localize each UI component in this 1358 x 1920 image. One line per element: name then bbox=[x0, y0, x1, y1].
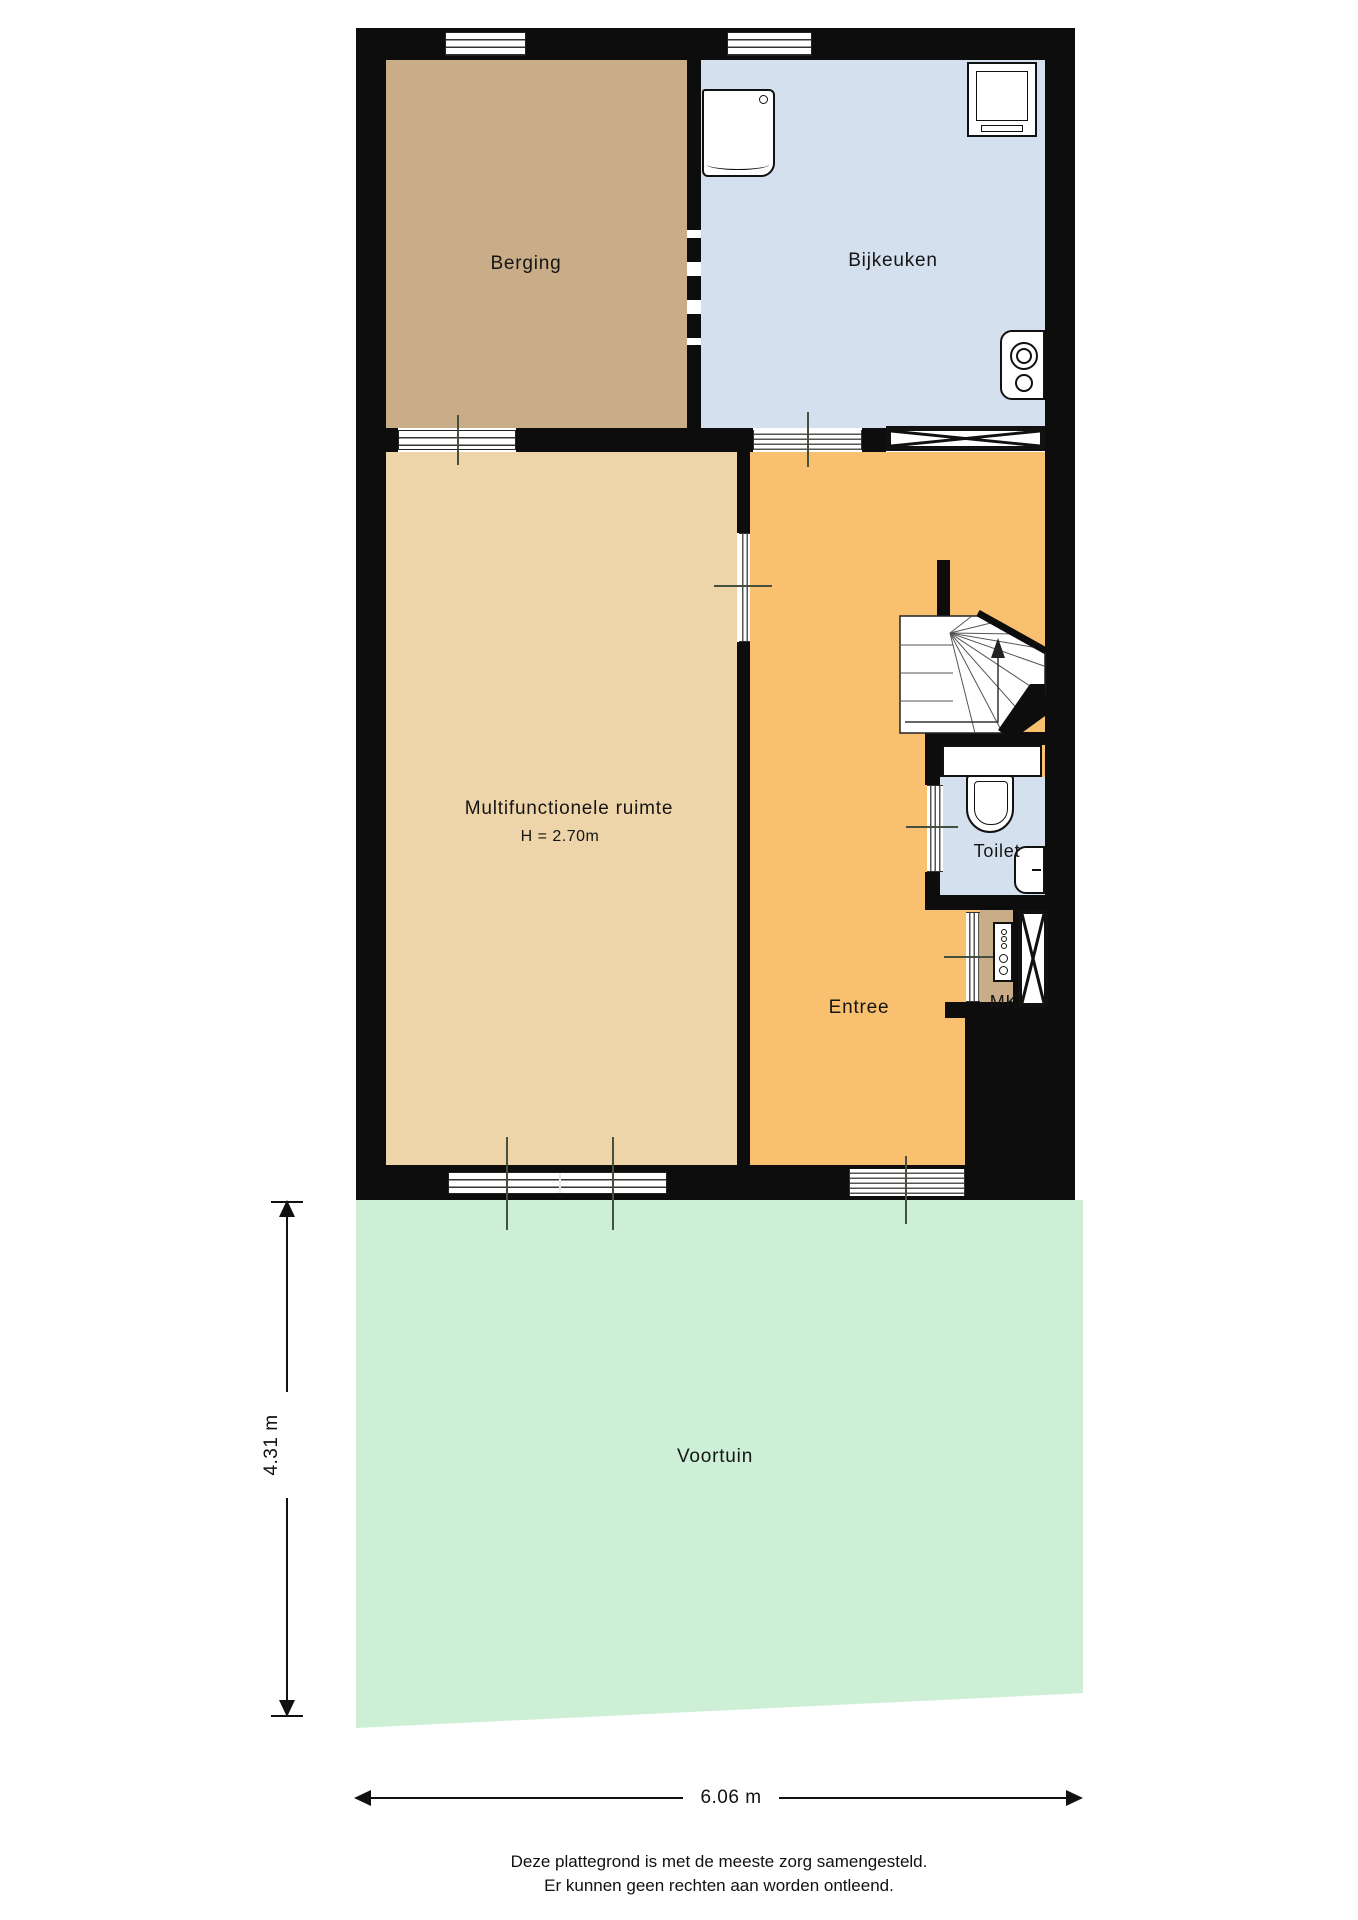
label-voortuin: Voortuin bbox=[615, 1446, 815, 1468]
tick-mk-door bbox=[944, 956, 1000, 958]
wall-divider-lower bbox=[737, 642, 750, 1165]
dim-h-arrow-left-icon bbox=[354, 1790, 371, 1806]
boiler-icon bbox=[1000, 330, 1045, 400]
window-bijkeuken-top bbox=[727, 32, 812, 56]
fuse-panel-icon bbox=[993, 922, 1013, 982]
dim-h-arrow-right-icon bbox=[1066, 1790, 1083, 1806]
label-bijkeuken: Bijkeuken bbox=[793, 250, 993, 272]
wall-mass-bottom-right bbox=[965, 1018, 1075, 1200]
wall-left bbox=[356, 28, 386, 1200]
label-multifunctionele-ruimte: Multifunctionele ruimte bbox=[419, 798, 719, 820]
wall-toilet-bottom bbox=[925, 895, 1075, 910]
wall-mid-right bbox=[862, 428, 886, 452]
opening-dash bbox=[687, 238, 701, 262]
tick-window-bottom-1 bbox=[506, 1137, 508, 1230]
floorplan-canvas: Berging Bijkeuken Multifunctionele ruimt… bbox=[0, 0, 1358, 1920]
dryer-icon bbox=[967, 62, 1037, 137]
closet-x bbox=[886, 426, 1045, 451]
dim-v-cap-top bbox=[271, 1201, 303, 1203]
footer-disclaimer-line2: Er kunnen geen rechten aan worden ontlee… bbox=[0, 1876, 1358, 1896]
label-entree: Entree bbox=[759, 997, 959, 1019]
door-multi-entree bbox=[739, 533, 750, 642]
window-mullion bbox=[559, 1173, 561, 1193]
room-berging bbox=[386, 60, 687, 428]
tick-bijkeuken-door bbox=[807, 412, 809, 467]
tick-window-bottom-2 bbox=[612, 1137, 614, 1230]
dim-plot-width: 6.06 m bbox=[683, 1787, 779, 1809]
dim-v-cap-bottom bbox=[271, 1715, 303, 1717]
dim-v-line-bottom bbox=[286, 1498, 288, 1710]
tick-toilet-door bbox=[906, 826, 958, 828]
closet-x-icon bbox=[891, 431, 1040, 446]
tick-multi-door bbox=[714, 585, 772, 587]
dim-h-line-left bbox=[366, 1797, 683, 1799]
label-toilet: Toilet bbox=[947, 841, 1047, 862]
dim-v-line-top bbox=[286, 1210, 288, 1392]
toilet-cistern-icon bbox=[942, 745, 1042, 777]
opening-dash bbox=[687, 314, 701, 338]
wall-berging-divider-bottom bbox=[687, 345, 701, 428]
stairs-icon bbox=[895, 608, 1050, 743]
dim-h-line-right bbox=[779, 1797, 1073, 1799]
footer-disclaimer-line1: Deze plattegrond is met de meeste zorg s… bbox=[0, 1852, 1358, 1872]
wall-mid-left bbox=[386, 428, 398, 452]
toilet-bowl-icon bbox=[966, 775, 1014, 833]
wall-mid-center bbox=[516, 428, 753, 452]
wall-divider-upper bbox=[737, 452, 750, 533]
tick-interior-window bbox=[457, 415, 459, 465]
label-mk: MK bbox=[974, 992, 1034, 1013]
washing-machine-icon bbox=[702, 89, 775, 177]
label-berging: Berging bbox=[426, 253, 626, 275]
dim-garden-depth: 4.31 m bbox=[261, 1395, 283, 1495]
door-toilet bbox=[927, 785, 943, 872]
label-height-note: H = 2.70m bbox=[435, 828, 685, 846]
opening-dash bbox=[687, 276, 701, 300]
window-multi-bottom bbox=[448, 1172, 667, 1194]
window-berging-top bbox=[445, 32, 526, 56]
door-front-entrance bbox=[849, 1169, 965, 1196]
meter-closet-x-icon bbox=[1022, 914, 1044, 1003]
wall-berging-divider-top bbox=[687, 60, 701, 230]
tick-front-door bbox=[905, 1156, 907, 1224]
